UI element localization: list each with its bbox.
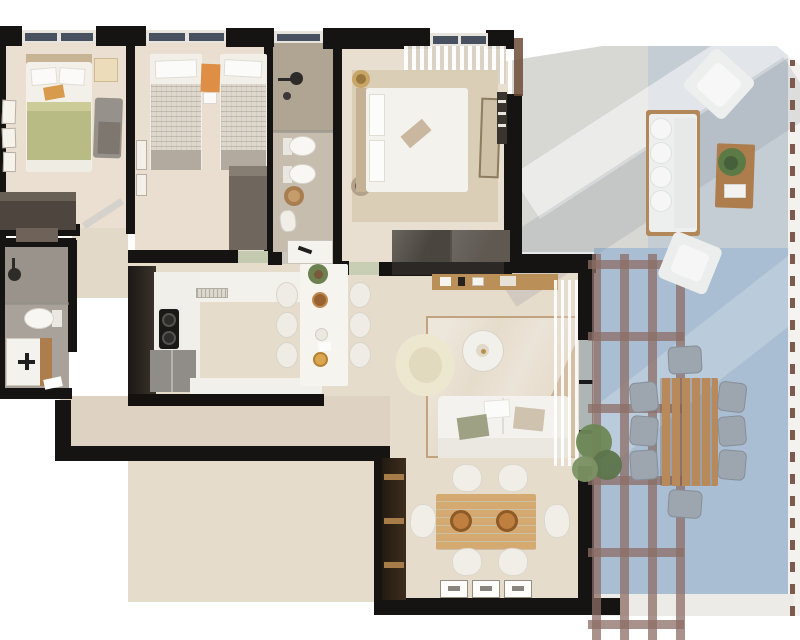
window-2-pane-right <box>189 33 224 41</box>
floor-frame-sketch-c <box>512 586 524 591</box>
pergola-post-b <box>620 254 629 640</box>
coffee-table-dot <box>481 349 486 354</box>
bowl-b <box>496 510 518 532</box>
bidet-bowl <box>289 164 316 184</box>
wall-bed1-bed2 <box>126 40 135 234</box>
bed1-pillow-a <box>30 67 57 86</box>
bar-shelf-a <box>384 474 404 480</box>
outdoor-chair-r1 <box>716 380 747 413</box>
bed2a-pillow <box>155 59 198 78</box>
side-table-item <box>203 92 217 104</box>
wall-frame-c <box>3 152 16 172</box>
toilet1-bowl <box>289 136 316 156</box>
bed1-duvet-fold <box>27 102 91 111</box>
terrace-sofa-cushion-a <box>650 118 672 140</box>
curtain-living-right <box>554 280 578 466</box>
lounge-chair-bed1-seat <box>97 122 120 155</box>
window-4-pane-left <box>433 36 458 44</box>
floor-hall <box>72 228 128 298</box>
bed2a-end <box>151 150 201 170</box>
wall-bath1-bottom-a <box>268 252 282 265</box>
sofa-pillow-green <box>457 414 490 440</box>
console-item-c <box>458 277 465 286</box>
wall-bath1-master <box>333 40 342 266</box>
terrace-plant-dark <box>724 156 738 170</box>
plate-b <box>315 328 328 341</box>
toilet2-bowl <box>24 308 54 329</box>
pergola-beam-f <box>588 620 684 629</box>
terrace-sofa-cushion-c <box>650 166 672 188</box>
faucet-bath2-b <box>25 353 29 370</box>
table-plant-pot <box>314 270 323 279</box>
door-threshold-master <box>349 262 379 275</box>
pergola-post-c <box>648 254 657 640</box>
railing-right <box>790 60 795 616</box>
sofa-pillow-white <box>483 399 510 419</box>
art-bed2-b <box>136 174 147 196</box>
wall-bed2-bottom <box>128 250 238 263</box>
floor-plan <box>0 0 800 640</box>
terrace-sofa-cushion-d <box>650 190 672 212</box>
bowl-a <box>450 510 472 532</box>
outdoor-chair-l2 <box>629 415 660 447</box>
bed-master-pillow-a <box>369 94 385 136</box>
bed2b-pillow <box>224 59 263 78</box>
wardrobe-master-door-b <box>452 230 510 262</box>
bed1-duvet-end <box>27 160 91 172</box>
shower1-head <box>290 72 303 85</box>
bed1-duvet <box>27 102 91 162</box>
nightstand-bed1 <box>94 58 118 82</box>
outdoor-chair-bottom <box>667 489 703 519</box>
sofa-pillow-beige <box>513 406 545 431</box>
wall-bathroom2-right <box>68 240 77 352</box>
outdoor-chair-r2 <box>717 415 748 447</box>
terrace-sofa-cushion-b <box>650 142 672 164</box>
plate-c <box>313 352 328 367</box>
hanger-c <box>498 124 506 127</box>
dresser-bed2-top <box>229 166 267 176</box>
bed1-pillow-b <box>58 67 85 86</box>
nightstand-master-1-lamp <box>356 74 366 84</box>
kitchen-vent-grille <box>196 288 228 298</box>
outdoor-chair-r3 <box>717 449 748 481</box>
wall-frame-a <box>2 100 17 124</box>
stool-bath1-top <box>288 190 300 202</box>
bed2b-duvet <box>221 84 266 152</box>
outdoor-table <box>660 378 718 486</box>
chair-dining-right <box>543 503 571 539</box>
bed-master-pillow-b <box>369 140 385 182</box>
fridge-seam <box>171 350 173 392</box>
dining-table-white <box>300 264 348 386</box>
napkin <box>318 341 332 351</box>
window-2-pane-left <box>149 33 185 41</box>
floor-frame-sketch-a <box>448 586 460 591</box>
blanket-orange <box>201 64 221 93</box>
window-1-pane-left <box>25 33 57 41</box>
bed-master-headboard <box>356 88 366 192</box>
plate-a <box>312 292 328 308</box>
glass-door-mullion-a <box>579 380 593 384</box>
bar-shelf-c <box>384 562 404 568</box>
console-item-b <box>472 277 484 286</box>
hanger-b <box>498 112 506 115</box>
pergola-beam-b <box>588 332 684 341</box>
terrace-tray <box>724 184 746 198</box>
console-item-d <box>500 276 516 286</box>
chair-dining-b1 <box>451 547 482 577</box>
wall-bathroom2-bottom <box>0 388 72 399</box>
wardrobe-master-door-a <box>392 230 450 262</box>
plant-bush-c <box>572 456 598 482</box>
wood-corner-master <box>514 38 523 96</box>
wall-frame-b <box>2 128 17 148</box>
floor-frame-sketch-b <box>480 586 492 591</box>
hanger-a <box>498 100 506 103</box>
wall-top-b <box>96 26 146 46</box>
kitchen-dark-band <box>128 394 324 406</box>
sofa-back <box>438 438 570 458</box>
console-item-a <box>440 277 451 286</box>
chair-dining-t1 <box>451 463 482 493</box>
wall-bathroom2-left <box>0 240 5 396</box>
window-4-pane-right <box>461 36 486 44</box>
wall-corridor-corner <box>55 400 71 452</box>
window-1-pane-right <box>61 33 93 41</box>
door-threshold-bed2 <box>238 251 268 263</box>
outdoor-chair-l1 <box>629 381 660 414</box>
terrace-sofa-seat <box>674 118 696 228</box>
shower2-head <box>8 268 21 281</box>
outdoor-chair-l3 <box>629 449 659 481</box>
bed2a-duvet <box>151 84 201 152</box>
wall-corridor-bottom <box>55 446 380 461</box>
floor-bathroom-1-shower <box>272 40 334 132</box>
outdoor-chair-top <box>667 345 702 375</box>
pergola-beam-e <box>588 548 684 557</box>
shower1-glass <box>273 130 333 133</box>
burner-b <box>162 331 176 345</box>
shower1-valve <box>283 92 291 100</box>
dresser-bed2 <box>229 166 267 250</box>
window-3-pane <box>277 34 320 41</box>
burner-a <box>162 313 176 327</box>
art-bed2-a <box>136 140 147 170</box>
bar-shelf-b <box>384 518 404 524</box>
cabinet-bath2 <box>16 228 58 242</box>
wardrobe-bed1-top <box>0 192 76 201</box>
shower2-glass <box>5 302 69 305</box>
